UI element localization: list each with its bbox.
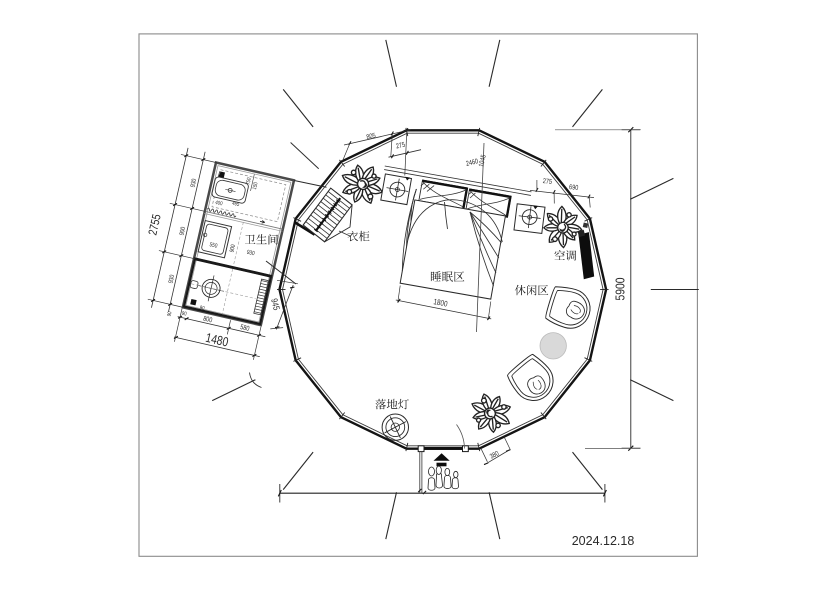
svg-text:690: 690 [569, 184, 579, 192]
svg-text:2024.12.18: 2024.12.18 [572, 534, 635, 548]
svg-text:275: 275 [542, 178, 552, 186]
svg-text:5900: 5900 [613, 278, 628, 301]
